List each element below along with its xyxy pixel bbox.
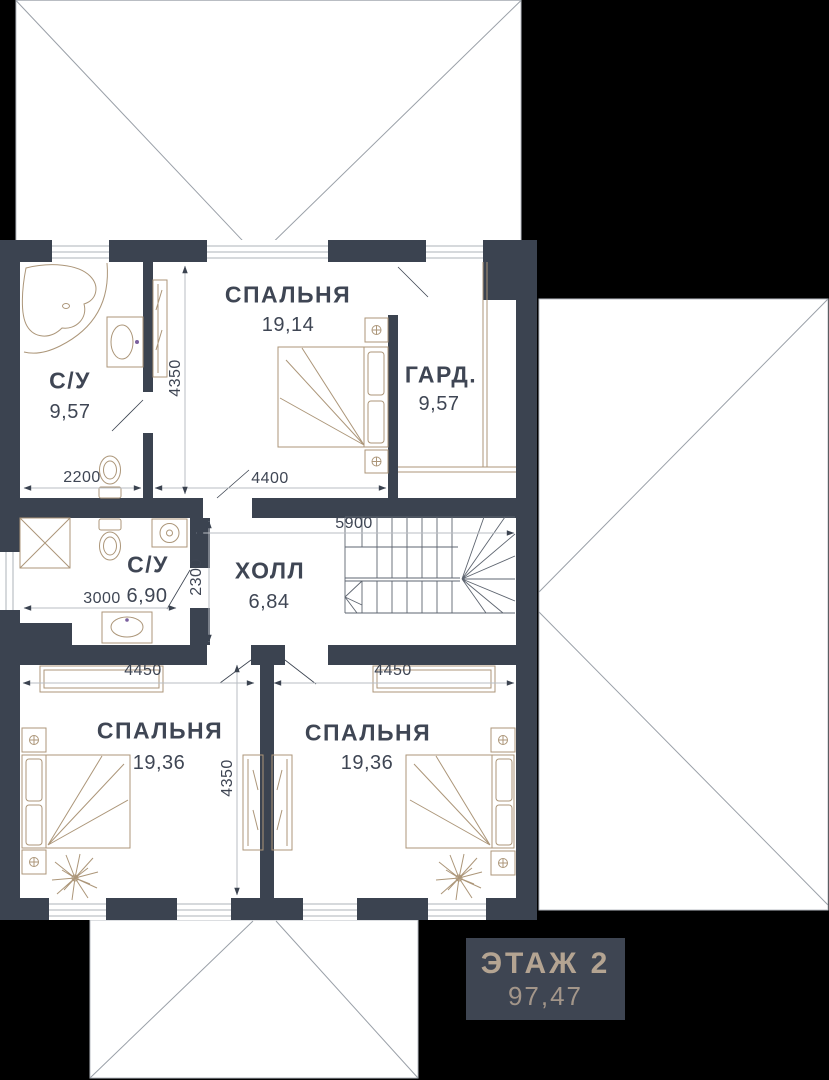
window-icon bbox=[207, 240, 328, 262]
roof-outline-right-icon bbox=[539, 299, 828, 910]
dim-bath1-width: 2200 bbox=[63, 470, 101, 486]
window-icon bbox=[49, 898, 106, 920]
dim-upper-depth: 4350 bbox=[168, 359, 184, 397]
floor-badge-title: ЭТАЖ 2 bbox=[481, 949, 611, 979]
window-icon bbox=[0, 552, 20, 610]
dim-bath2-width: 3000 bbox=[83, 591, 121, 607]
room-area-hall: 6,84 bbox=[249, 592, 290, 612]
room-area-bedroom1: 19,14 bbox=[262, 315, 315, 335]
roof-outline-top-icon bbox=[16, 1, 521, 258]
window-icon bbox=[426, 240, 483, 262]
dim-hall-width: 5900 bbox=[335, 516, 373, 532]
dim-lower-depth: 4350 bbox=[220, 759, 236, 797]
room-area-bedroom3: 19,36 bbox=[341, 753, 394, 773]
room-area-bath2: 6,90 bbox=[127, 586, 168, 606]
dim-bedroom1-width: 4400 bbox=[251, 471, 289, 487]
room-name-bath1: С/У bbox=[49, 370, 91, 393]
room-area-wardrobe: 9,57 bbox=[419, 394, 460, 414]
room-name-hall: ХОЛЛ bbox=[235, 560, 305, 583]
roof-outline-bottom-icon bbox=[90, 920, 418, 1078]
room-area-bedroom2: 19,36 bbox=[133, 753, 186, 773]
floor-plan-drawing bbox=[0, 0, 829, 1080]
floor-badge-area: 97,47 bbox=[508, 983, 583, 1009]
room-name-bedroom2: СПАЛЬНЯ bbox=[97, 720, 223, 743]
room-area-bath1: 9,57 bbox=[50, 402, 91, 422]
window-icon bbox=[303, 898, 357, 920]
dim-bedroom2-width: 4450 bbox=[124, 663, 162, 679]
room-name-bedroom3: СПАЛЬНЯ bbox=[305, 722, 431, 745]
floor-plan-page: С/У 9,57 СПАЛЬНЯ 19,14 ГАРД. 9,57 С/У 6,… bbox=[0, 0, 829, 1080]
window-icon bbox=[52, 240, 109, 262]
room-name-wardrobe: ГАРД. bbox=[405, 364, 477, 387]
dim-hall-depth: 2300 bbox=[189, 558, 205, 596]
window-icon bbox=[177, 898, 231, 920]
dim-bedroom3-width: 4450 bbox=[374, 663, 412, 679]
window-icon bbox=[428, 898, 486, 920]
room-name-bedroom1: СПАЛЬНЯ bbox=[225, 284, 351, 307]
floor-badge: ЭТАЖ 2 97,47 bbox=[466, 938, 625, 1020]
room-name-bath2: С/У bbox=[127, 554, 169, 577]
